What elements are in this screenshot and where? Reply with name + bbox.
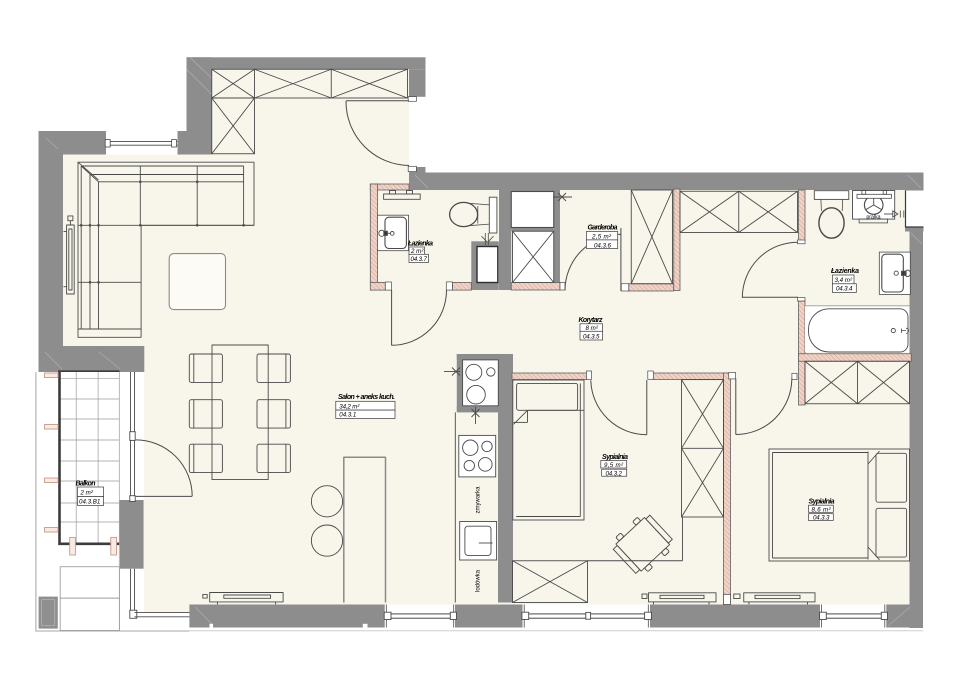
svg-text:pralka: pralka xyxy=(866,214,880,220)
svg-text:8,6 m²: 8,6 m² xyxy=(812,506,832,513)
svg-text:04.3.2: 04.3.2 xyxy=(606,470,623,477)
svg-text:2 m²: 2 m² xyxy=(410,248,424,255)
svg-text:04.3.1: 04.3.1 xyxy=(339,412,356,419)
svg-text:Salon + aneks kuch.: Salon + aneks kuch. xyxy=(338,394,395,401)
svg-text:Łazienka: Łazienka xyxy=(407,241,433,248)
svg-text:lodówka: lodówka xyxy=(476,569,482,592)
svg-text:8 m²: 8 m² xyxy=(586,325,599,332)
svg-text:Garderoba: Garderoba xyxy=(588,225,618,232)
svg-text:04.3.6: 04.3.6 xyxy=(594,243,612,250)
svg-text:Sypialnia: Sypialnia xyxy=(602,454,628,461)
svg-text:2,5 m²: 2,5 m² xyxy=(591,234,612,241)
svg-text:2 m²: 2 m² xyxy=(80,489,94,496)
svg-text:3,4 m²: 3,4 m² xyxy=(835,277,853,284)
svg-text:Korytarz: Korytarz xyxy=(579,317,604,324)
svg-text:04.3.B1: 04.3.B1 xyxy=(79,499,100,506)
svg-text:04.3.5: 04.3.5 xyxy=(583,334,600,341)
svg-text:34,2 m²: 34,2 m² xyxy=(339,403,360,410)
svg-text:9,5 m²: 9,5 m² xyxy=(604,462,624,469)
svg-text:Łazienka: Łazienka xyxy=(830,268,859,275)
svg-text:Balkon: Balkon xyxy=(76,481,96,488)
svg-text:04.3.3: 04.3.3 xyxy=(813,515,830,522)
svg-text:04.3.7: 04.3.7 xyxy=(411,256,428,263)
svg-text:zmywarka: zmywarka xyxy=(476,486,482,514)
svg-text:04.3.4: 04.3.4 xyxy=(836,286,853,293)
svg-text:Sypialnia: Sypialnia xyxy=(809,498,835,505)
